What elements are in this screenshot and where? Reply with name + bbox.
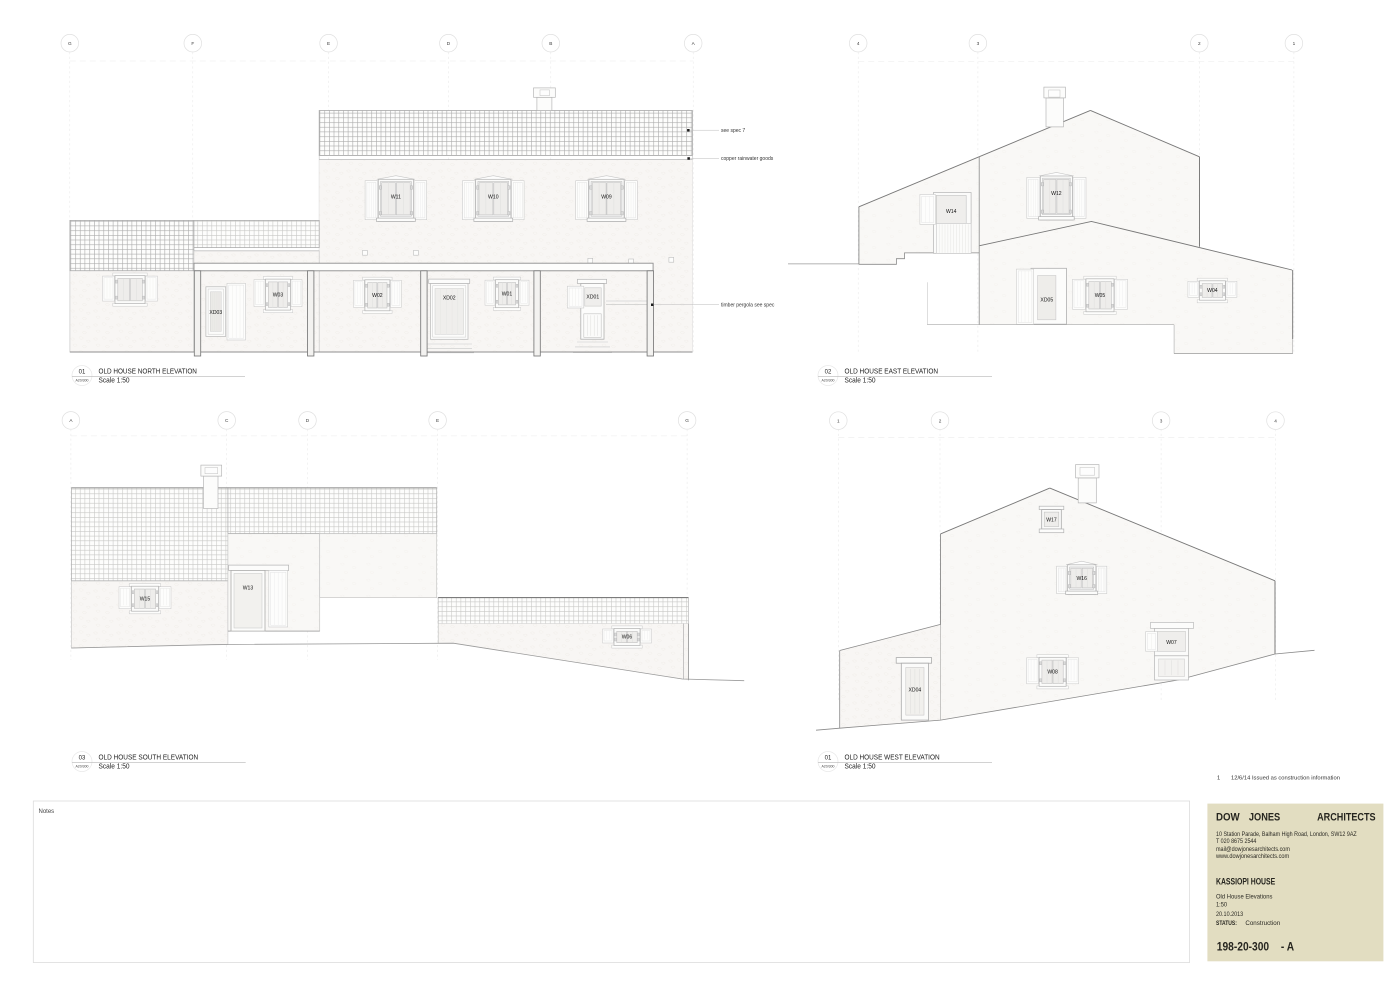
svg-text:01: 01: [825, 755, 832, 761]
svg-text:W04: W04: [1207, 288, 1218, 294]
svg-text:3: 3: [1160, 418, 1163, 423]
svg-text:A20/300: A20/300: [75, 378, 88, 382]
svg-text:G: G: [685, 418, 689, 423]
svg-text:3: 3: [977, 41, 980, 46]
svg-text:XD01: XD01: [586, 295, 599, 301]
svg-text:W10: W10: [488, 194, 499, 200]
svg-text:01: 01: [79, 369, 86, 375]
svg-text:03: 03: [79, 755, 86, 761]
svg-text:W11: W11: [391, 194, 401, 200]
svg-text:4: 4: [857, 41, 860, 46]
svg-text:A20/300: A20/300: [75, 764, 88, 768]
svg-text:Scale 1:50: Scale 1:50: [845, 762, 876, 771]
svg-text:G: G: [68, 41, 72, 46]
svg-text:OLD HOUSE SOUTH ELEVATION: OLD HOUSE SOUTH ELEVATION: [99, 753, 199, 762]
svg-text:D: D: [447, 41, 451, 46]
svg-text:see spec 7: see spec 7: [721, 128, 745, 134]
svg-text:02: 02: [825, 369, 832, 375]
svg-text:Construction: Construction: [1245, 920, 1280, 927]
svg-text:W07: W07: [1166, 640, 1177, 646]
svg-text:A20/300: A20/300: [821, 764, 834, 768]
svg-text:STATUS:: STATUS:: [1216, 920, 1237, 927]
svg-text:1: 1: [837, 418, 840, 423]
svg-text:C: C: [225, 418, 229, 423]
svg-text:W02: W02: [372, 293, 383, 299]
svg-text:4: 4: [1274, 418, 1277, 423]
svg-text:Notes: Notes: [39, 809, 55, 815]
svg-text:mail@dowjonesarchitects.com: mail@dowjonesarchitects.com: [1216, 846, 1290, 853]
svg-text:OLD HOUSE EAST ELEVATION: OLD HOUSE EAST ELEVATION: [845, 367, 939, 376]
svg-text:1:50: 1:50: [1216, 902, 1228, 909]
svg-text:XD02: XD02: [443, 296, 456, 302]
svg-text:W05: W05: [1095, 293, 1106, 299]
svg-text:Old House Elevations: Old House Elevations: [1216, 894, 1272, 901]
svg-text:www.dowjonesarchitects.com: www.dowjonesarchitects.com: [1215, 853, 1289, 860]
svg-text:OLD HOUSE WEST ELEVATION: OLD HOUSE WEST ELEVATION: [845, 753, 940, 762]
svg-text:XD05: XD05: [1040, 298, 1053, 304]
svg-text:E: E: [327, 41, 330, 46]
svg-text:timber pergola see spec: timber pergola see spec: [721, 302, 775, 308]
svg-text:A20/300: A20/300: [821, 378, 834, 382]
svg-text:1: 1: [1293, 41, 1296, 46]
svg-text:W14: W14: [946, 209, 957, 215]
svg-text:1: 1: [1217, 776, 1220, 782]
svg-text:W06: W06: [622, 635, 633, 641]
svg-text:W17: W17: [1046, 518, 1057, 524]
svg-text:W16: W16: [1076, 576, 1087, 582]
svg-text:KASSIOPI HOUSE: KASSIOPI HOUSE: [1216, 877, 1275, 887]
svg-text:OLD HOUSE NORTH ELEVATION: OLD HOUSE NORTH ELEVATION: [99, 367, 197, 376]
svg-text:Scale 1:50: Scale 1:50: [99, 762, 130, 771]
svg-text:E: E: [436, 418, 439, 423]
svg-text:W01: W01: [502, 291, 513, 297]
svg-text:Scale 1:50: Scale 1:50: [845, 376, 876, 385]
svg-text:W13: W13: [243, 586, 254, 592]
svg-text:W15: W15: [140, 596, 151, 602]
svg-text:T 020 8675 2544: T 020 8675 2544: [1216, 838, 1257, 845]
svg-text:12/6/14 Issued as constructio: 12/6/14 Issued as construction informati…: [1231, 776, 1340, 782]
svg-text:F: F: [191, 41, 194, 46]
svg-text:W08: W08: [1047, 670, 1058, 676]
svg-text:W12: W12: [1051, 191, 1062, 197]
svg-text:W03: W03: [273, 292, 284, 298]
svg-text:B: B: [549, 41, 552, 46]
svg-text:W09: W09: [601, 194, 612, 200]
svg-text:DOW: DOW: [1216, 812, 1240, 824]
svg-text:ARCHITECTS: ARCHITECTS: [1317, 812, 1376, 824]
svg-text:198-20-300: 198-20-300: [1217, 939, 1269, 953]
svg-text:2: 2: [939, 418, 942, 423]
svg-text:copper rainwater goods: copper rainwater goods: [721, 156, 774, 162]
svg-text:20.10.2013: 20.10.2013: [1216, 911, 1244, 918]
svg-text:XD03: XD03: [209, 310, 222, 316]
svg-text:2: 2: [1198, 41, 1201, 46]
svg-text:- A: - A: [1281, 939, 1294, 953]
svg-text:Scale 1:50: Scale 1:50: [99, 376, 130, 385]
svg-text:10 Station Parade, Balham High: 10 Station Parade, Balham High Road, Lon…: [1216, 831, 1357, 838]
svg-text:JONES: JONES: [1249, 812, 1280, 824]
svg-text:XD04: XD04: [909, 688, 922, 694]
